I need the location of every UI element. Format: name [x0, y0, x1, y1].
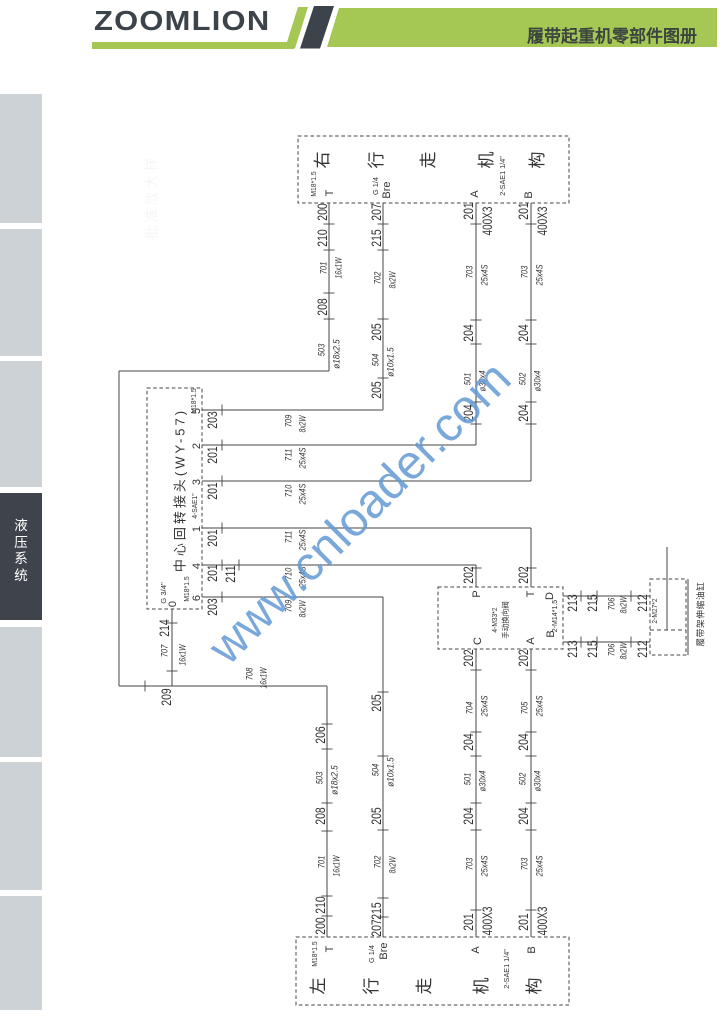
svg-text:205: 205	[369, 694, 384, 711]
svg-text:B: B	[526, 946, 538, 953]
svg-text:708: 708	[244, 668, 254, 681]
svg-text:25x4S: 25x4S	[534, 696, 544, 718]
svg-text:202: 202	[461, 649, 476, 666]
svg-text:204: 204	[516, 807, 531, 825]
svg-text:Bre: Bre	[381, 181, 393, 198]
svg-text:201: 201	[205, 564, 220, 581]
svg-text:709: 709	[283, 415, 293, 428]
svg-text:710: 710	[283, 485, 293, 498]
svg-text:212: 212	[635, 640, 650, 657]
svg-text:711: 711	[283, 449, 293, 462]
svg-text:2-SAE1 1/4": 2-SAE1 1/4"	[502, 949, 511, 989]
svg-text:1: 1	[191, 526, 203, 532]
svg-text:右: 右	[313, 152, 332, 169]
svg-text:205: 205	[369, 807, 384, 824]
svg-text:212: 212	[635, 594, 650, 611]
svg-text:205: 205	[369, 381, 384, 398]
svg-text:履带架伸缩油缸: 履带架伸缩油缸	[696, 581, 706, 646]
svg-text:T: T	[324, 189, 336, 196]
svg-text:207: 207	[369, 203, 384, 220]
svg-text:ø18x2.5: ø18x2.5	[331, 338, 341, 368]
svg-text:C: C	[472, 637, 484, 645]
svg-text:400X3: 400X3	[535, 907, 550, 936]
svg-text:25x4S: 25x4S	[297, 448, 307, 470]
svg-text:204: 204	[461, 324, 476, 342]
svg-text:205: 205	[369, 323, 384, 340]
svg-text:711: 711	[283, 531, 293, 544]
svg-text:208: 208	[315, 298, 330, 315]
svg-text:706: 706	[606, 598, 616, 611]
svg-text:D: D	[544, 592, 556, 600]
svg-text:213: 213	[565, 594, 580, 611]
svg-text:走: 走	[419, 152, 438, 169]
svg-text:G 1/4: G 1/4	[367, 945, 376, 963]
svg-text:16x1W: 16x1W	[177, 643, 187, 665]
svg-text:201: 201	[516, 913, 531, 930]
svg-text:8x2W: 8x2W	[387, 271, 397, 289]
svg-text:走: 走	[415, 978, 434, 995]
svg-text:行: 行	[362, 978, 381, 995]
svg-text:4: 4	[191, 563, 203, 569]
svg-text:ø30x4: ø30x4	[532, 771, 542, 792]
svg-text:400X3: 400X3	[480, 907, 495, 936]
svg-text:202: 202	[461, 566, 476, 583]
svg-text:4-M33*2: 4-M33*2	[490, 607, 499, 632]
svg-text:4-SAE1": 4-SAE1"	[190, 493, 199, 518]
svg-text:2-SAE1 1/4": 2-SAE1 1/4"	[498, 156, 507, 196]
svg-text:503: 503	[316, 344, 326, 357]
svg-text:Bre: Bre	[378, 942, 390, 959]
svg-text:5: 5	[191, 408, 203, 414]
svg-text:202: 202	[516, 566, 531, 583]
svg-text:25x4S: 25x4S	[479, 265, 489, 287]
svg-text:210: 210	[315, 229, 330, 246]
svg-text:25x4S: 25x4S	[297, 484, 307, 506]
svg-text:G 3/4": G 3/4"	[159, 582, 168, 604]
svg-text:构: 构	[525, 978, 544, 995]
svg-text:16x1W: 16x1W	[333, 256, 343, 278]
svg-text:703: 703	[464, 858, 474, 871]
svg-text:215: 215	[585, 594, 600, 611]
svg-text:704: 704	[464, 702, 474, 715]
svg-text:502: 502	[517, 373, 527, 386]
svg-text:705: 705	[519, 701, 529, 714]
svg-text:201: 201	[205, 482, 220, 499]
svg-text:25x4S: 25x4S	[534, 856, 544, 878]
svg-text:201: 201	[205, 446, 220, 463]
svg-text:M18*1.5: M18*1.5	[309, 171, 318, 196]
svg-text:215: 215	[585, 640, 600, 657]
svg-text:机: 机	[472, 978, 491, 995]
svg-text:25x4S: 25x4S	[534, 265, 544, 287]
svg-text:ø10x1.5: ø10x1.5	[385, 346, 395, 376]
svg-text:211: 211	[223, 565, 238, 582]
svg-text:213: 213	[565, 640, 580, 657]
svg-text:209: 209	[159, 688, 174, 705]
svg-text:2-M27*2: 2-M27*2	[650, 598, 659, 623]
svg-text:201: 201	[461, 202, 476, 219]
svg-text:批准放大样: 批准放大样	[144, 155, 160, 240]
svg-text:203: 203	[205, 411, 220, 428]
svg-text:204: 204	[516, 733, 531, 751]
svg-text:8x2W: 8x2W	[618, 642, 628, 660]
svg-text:ø30x4: ø30x4	[477, 771, 487, 792]
svg-text:703: 703	[464, 266, 474, 279]
svg-text:214: 214	[157, 619, 172, 637]
svg-text:207: 207	[369, 919, 384, 936]
svg-text:行: 行	[367, 152, 386, 169]
svg-text:16x1W: 16x1W	[331, 854, 341, 876]
svg-text:503: 503	[314, 772, 324, 785]
svg-text:400X3: 400X3	[480, 207, 495, 236]
svg-text:8x2W: 8x2W	[297, 415, 307, 433]
svg-text:504: 504	[370, 764, 380, 777]
svg-text:www.cnloader.com: www.cnloader.com	[198, 352, 521, 675]
svg-text:400X3: 400X3	[535, 207, 550, 236]
svg-text:2: 2	[191, 443, 203, 449]
svg-text:502: 502	[517, 773, 527, 786]
svg-text:P: P	[471, 590, 483, 597]
svg-text:703: 703	[519, 858, 529, 871]
svg-text:702: 702	[372, 272, 382, 285]
svg-text:201: 201	[516, 202, 531, 219]
svg-text:202: 202	[516, 649, 531, 666]
svg-text:706: 706	[606, 644, 616, 657]
svg-text:M18*1.5: M18*1.5	[310, 941, 319, 966]
svg-text:6: 6	[191, 595, 203, 601]
svg-text:8x2W: 8x2W	[618, 596, 628, 614]
svg-text:210: 210	[313, 896, 328, 913]
svg-text:8x2W: 8x2W	[387, 856, 397, 874]
svg-text:ø30x4: ø30x4	[532, 371, 542, 392]
svg-text:703: 703	[519, 266, 529, 279]
svg-text:A: A	[525, 637, 537, 645]
svg-text:702: 702	[372, 856, 382, 869]
svg-text:机: 机	[477, 152, 496, 169]
svg-text:ø10x1.5: ø10x1.5	[385, 756, 395, 786]
svg-text:204: 204	[516, 404, 531, 422]
svg-text:201: 201	[461, 913, 476, 930]
svg-text:T: T	[324, 945, 336, 952]
svg-text:2-M14*1.5: 2-M14*1.5	[550, 600, 559, 632]
svg-text:701: 701	[318, 262, 328, 275]
svg-text:B: B	[523, 191, 535, 198]
svg-text:204: 204	[516, 324, 531, 342]
svg-text:中心回转接头(WY-57): 中心回转接头(WY-57)	[173, 408, 188, 572]
svg-text:501: 501	[462, 773, 472, 786]
svg-text:25x4S: 25x4S	[479, 696, 489, 718]
svg-text:203: 203	[205, 598, 220, 615]
svg-text:构: 构	[528, 152, 547, 169]
svg-text:504: 504	[370, 354, 380, 367]
svg-text:3: 3	[191, 479, 203, 485]
svg-text:16x1W: 16x1W	[258, 666, 268, 688]
svg-text:T: T	[525, 590, 537, 597]
svg-text:200: 200	[315, 203, 330, 220]
svg-text:701: 701	[316, 856, 326, 869]
svg-text:0: 0	[167, 601, 179, 607]
svg-text:A: A	[469, 190, 481, 198]
svg-text:204: 204	[461, 733, 476, 751]
svg-text:G 1/4: G 1/4	[371, 177, 380, 195]
svg-text:208: 208	[313, 807, 328, 824]
svg-text:200: 200	[313, 917, 328, 934]
svg-text:215: 215	[369, 229, 384, 246]
svg-text:左: 左	[309, 978, 328, 995]
svg-text:707: 707	[159, 644, 169, 657]
svg-text:201: 201	[205, 529, 220, 546]
svg-text:25x4S: 25x4S	[479, 856, 489, 878]
svg-text:A: A	[470, 946, 482, 954]
svg-text:M18*1.5: M18*1.5	[182, 576, 191, 601]
svg-text:手动换向阀: 手动换向阀	[500, 601, 510, 639]
svg-text:ø18x2.5: ø18x2.5	[329, 764, 339, 794]
svg-text:206: 206	[313, 726, 328, 743]
svg-text:204: 204	[461, 807, 476, 825]
